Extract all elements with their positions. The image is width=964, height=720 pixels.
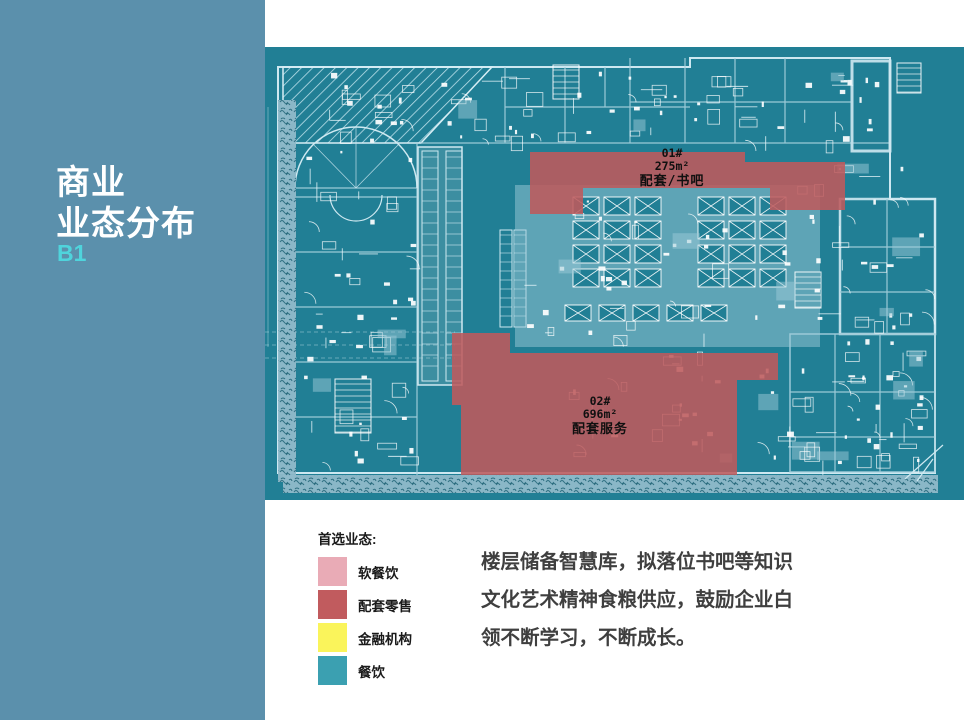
left-wall-rubble	[278, 100, 296, 482]
legend-item-label: 软餐饮	[358, 562, 399, 582]
description-line: 文化艺术精神食粮供应，鼓励企业白	[481, 581, 817, 619]
description-line: 领不断学习，不断成长。	[481, 619, 817, 657]
floorplan-panel: 01# 275m² 配套/书吧 02# 696m² 配套服务	[265, 47, 964, 500]
legend-item-label: 金融机构	[358, 628, 412, 648]
description-text: 楼层储备智慧库，拟落位书吧等知识 文化艺术精神食粮供应，鼓励企业白 领不断学习，…	[481, 543, 817, 657]
legend-item-label: 配套零售	[358, 595, 412, 615]
region-02-area: 696m²	[510, 408, 690, 421]
legend-swatch-red	[318, 590, 347, 619]
sidebar: 商业 业态分布 B1	[0, 0, 265, 720]
region-label-01: 01# 275m² 配套/书吧	[582, 147, 762, 190]
legend-item-finance: 金融机构	[318, 623, 478, 652]
legend-item-label: 餐饮	[358, 661, 385, 681]
legend-swatch-pink	[318, 557, 347, 586]
bottom-wall-rubble	[283, 475, 938, 493]
page-title: 商业 业态分布	[56, 163, 196, 246]
region-02-use: 配套服务	[510, 421, 690, 438]
description-line: 楼层储备智慧库，拟落位书吧等知识	[481, 543, 817, 581]
region-01-area: 275m²	[582, 160, 762, 173]
title-line-1: 商业	[56, 163, 196, 204]
region-01-use: 配套/书吧	[582, 173, 762, 190]
legend-title: 首选业态:	[318, 528, 478, 548]
legend-item-soft-fnb: 软餐饮	[318, 557, 478, 586]
region-label-02: 02# 696m² 配套服务	[510, 395, 690, 438]
legend: 首选业态: 软餐饮 配套零售 金融机构 餐饮	[318, 528, 478, 689]
legend-swatch-teal	[318, 656, 347, 685]
legend-item-retail: 配套零售	[318, 590, 478, 619]
slide: 商业 业态分布 B1	[0, 0, 964, 720]
floor-label: B1	[57, 240, 86, 267]
legend-item-fnb: 餐饮	[318, 656, 478, 685]
legend-swatch-yellow	[318, 623, 347, 652]
